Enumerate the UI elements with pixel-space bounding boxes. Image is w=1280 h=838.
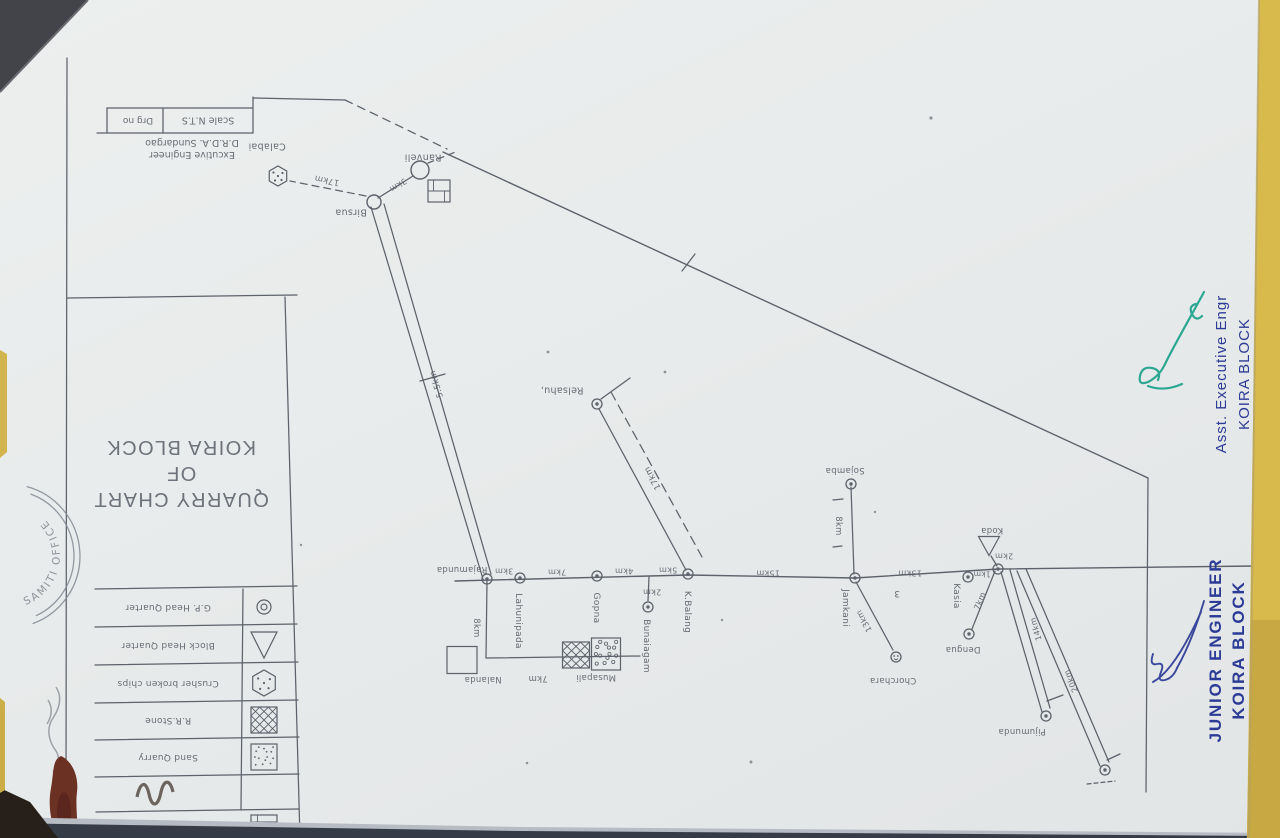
blue-signature xyxy=(1152,601,1204,682)
junior-org: KOIRA BLOCK xyxy=(1227,558,1250,743)
svg-text:SAMITI OFFICE: SAMITI OFFICE xyxy=(22,517,63,608)
chart-title-line1: QUARRY CHART xyxy=(93,486,269,512)
titleblock-engineer-line1: Excutive Engineer xyxy=(145,148,239,160)
office-stamp: SAMITI OFFICE xyxy=(17,487,80,624)
yellow-surface-left-sliver2 xyxy=(0,698,5,793)
stamp-text: SAMITI OFFICE xyxy=(22,517,63,608)
junior-engineer-caption: JUNIOR ENGINEER KOIRA BLOCK xyxy=(1204,558,1250,743)
green-signature xyxy=(1140,292,1204,389)
asst-executive-engineer-caption: Asst. Executive Engr KOIRA BLOCK xyxy=(1210,295,1256,453)
photo-overlay-layer: SAMITI OFFICE xyxy=(0,0,1280,838)
junior-title: JUNIOR ENGINEER xyxy=(1204,558,1227,743)
titleblock-scale: Scale N.T.S xyxy=(182,115,234,126)
asst-org: KOIRA BLOCK xyxy=(1233,295,1256,453)
asst-title: Asst. Executive Engr xyxy=(1210,295,1233,453)
paper-specks xyxy=(300,116,933,764)
smudge-mark xyxy=(137,782,173,804)
chart-title: QUARRY CHART OF KOIRA BLOCK xyxy=(93,434,269,512)
titleblock-engineer: Excutive Engineer D.R.D.A. Sundargao xyxy=(145,136,239,160)
chart-title-line2: OF xyxy=(93,460,269,486)
chart-title-line3: KOIRA BLOCK xyxy=(93,434,269,460)
titleblock-drg-no: Drg no xyxy=(123,115,153,125)
corner-shadow-bottom-left xyxy=(0,788,58,838)
yellow-surface-left-sliver xyxy=(0,350,7,458)
titleblock-engineer-line2: D.R.D.A. Sundargao xyxy=(145,136,239,148)
photo-of-quarry-chart: { "document": { "title_line1": "QUARRY C… xyxy=(0,0,1280,838)
